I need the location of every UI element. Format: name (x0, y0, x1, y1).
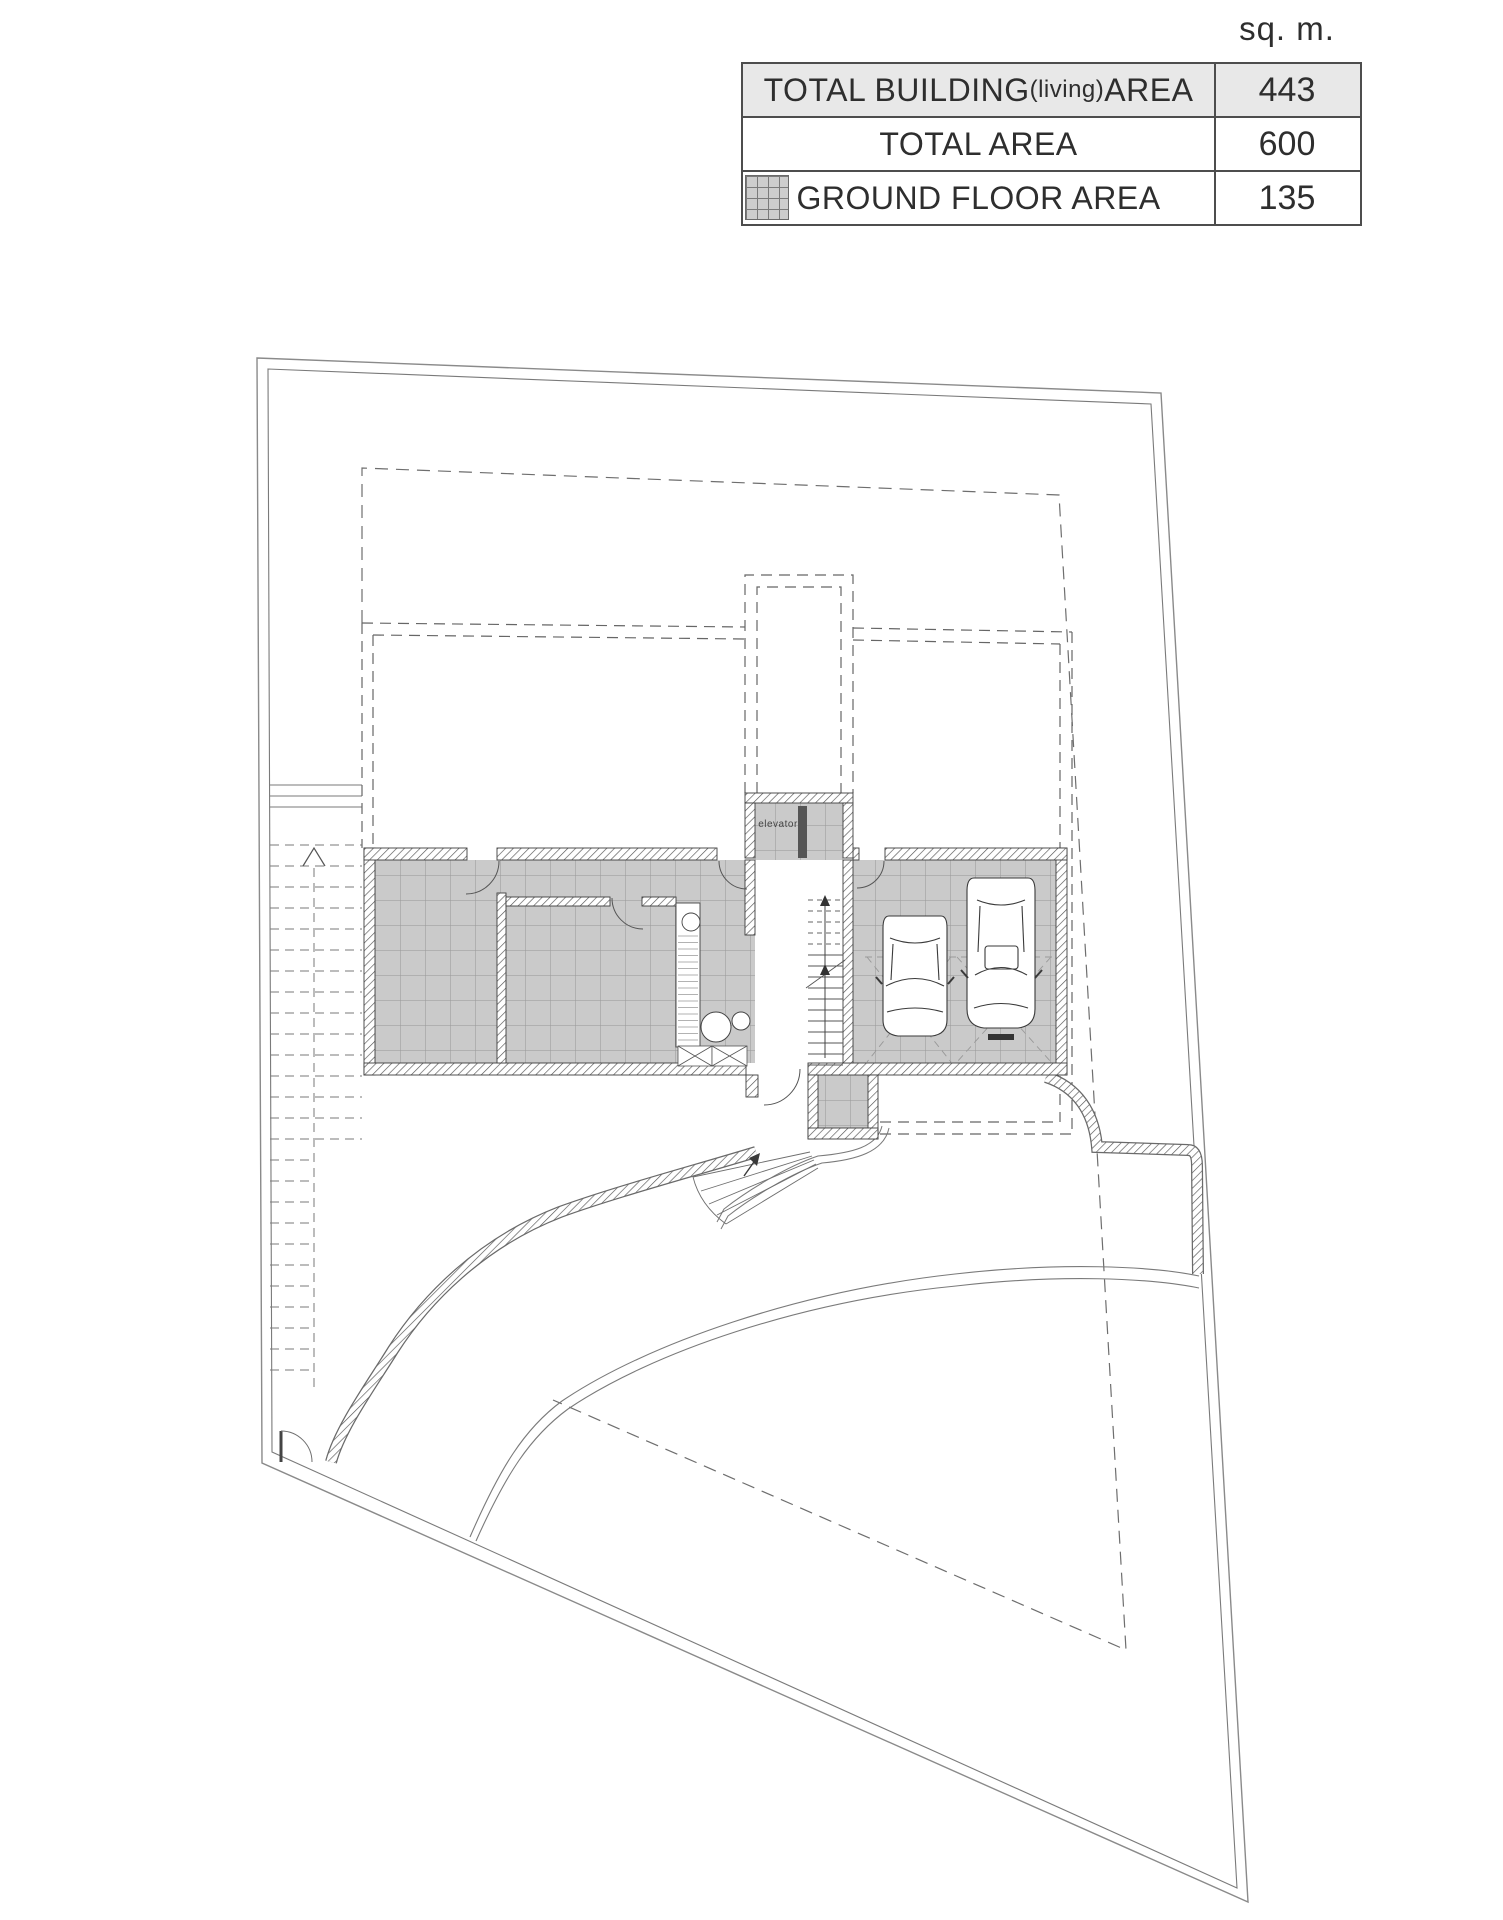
chair (732, 1012, 750, 1030)
elevator-shaft-dashed-outline (745, 575, 853, 793)
site-plan-drawing: elevator (0, 0, 1503, 1920)
car-small (876, 916, 954, 1036)
retaining-wall-west-band (331, 1152, 756, 1462)
car-bumper (988, 1034, 1014, 1040)
area-table: TOTAL BUILDING(living) AREA 443 TOTAL AR… (741, 62, 1362, 226)
table-row-total-building: TOTAL BUILDING(living) AREA 443 (743, 64, 1360, 116)
car-large (961, 878, 1042, 1040)
row-label: GROUND FLOOR AREA (743, 172, 1214, 224)
site-plan-sheet: elevator (0, 0, 1503, 1920)
label-paren: (living) (1030, 76, 1105, 104)
table-row-ground-floor: GROUND FLOOR AREA 135 (743, 170, 1360, 224)
row-label: TOTAL AREA (743, 118, 1214, 170)
row-value: 600 (1214, 118, 1358, 170)
retaining-wall-east-band (1046, 1077, 1198, 1274)
site-stairs-left (270, 785, 362, 1390)
round-table (701, 1012, 731, 1042)
label-tail: AREA (1104, 72, 1193, 109)
row-label: TOTAL BUILDING(living) AREA (743, 64, 1214, 116)
unit-label: sq. m. (1214, 10, 1360, 48)
ground-floor-hatch-swatch (745, 175, 789, 220)
row-value: 443 (1214, 64, 1358, 116)
driveway-curves (281, 1077, 1199, 1541)
gate-swing-arc (281, 1431, 312, 1462)
stairs-direction-arrow (303, 848, 325, 866)
porch-floor (818, 1075, 868, 1130)
ground-floor-building: elevator (364, 793, 1067, 1139)
plant (682, 913, 700, 931)
elevator-divider-wall (798, 806, 807, 858)
label-main: TOTAL BUILDING (764, 72, 1030, 109)
row-value: 135 (1214, 172, 1358, 224)
stair-bay-floor (755, 860, 843, 1063)
floor-hatch-boxes (678, 1046, 747, 1066)
table-row-total-area: TOTAL AREA 600 (743, 116, 1360, 170)
elevator-shaft-wall (745, 793, 853, 803)
elevator-label: elevator (758, 819, 798, 830)
